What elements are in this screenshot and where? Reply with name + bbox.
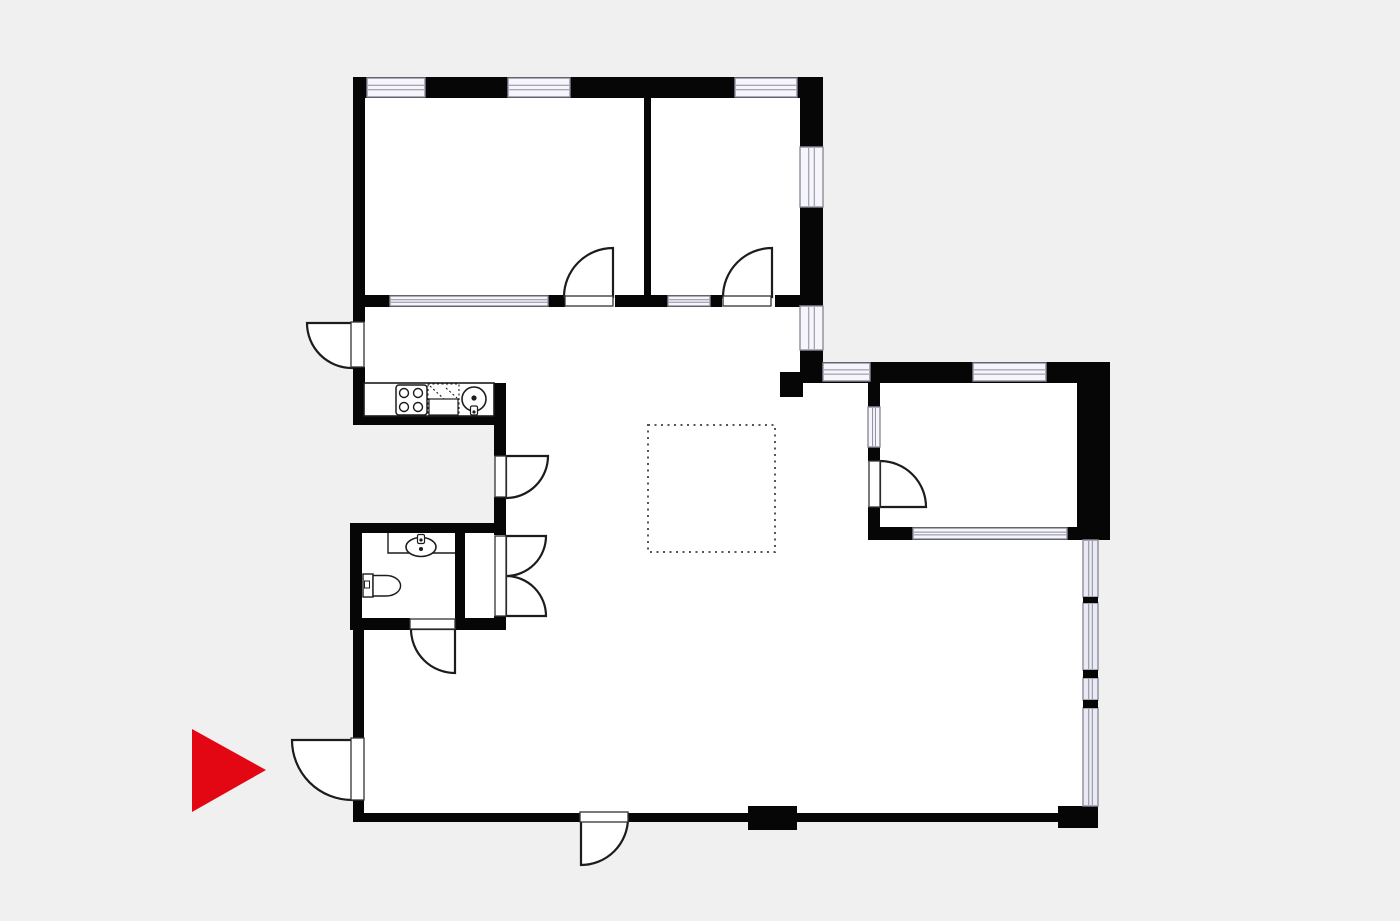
pier-living-corner (780, 372, 803, 397)
door-leaf-bedroom-2 (723, 296, 771, 306)
toilet-bowl (373, 576, 401, 597)
wall-bath-north (350, 523, 506, 533)
glass-pane-4-frame (1083, 708, 1098, 806)
wall-bedrooms-south-c (775, 295, 823, 307)
window-top-2-frame (508, 78, 570, 97)
glass-pane-2-frame (1083, 603, 1098, 670)
floorplan-image (0, 0, 1400, 921)
door-leaf-bedroom-1 (565, 296, 613, 306)
wall-bath-west (350, 523, 362, 630)
door-leaf-hall-exterior (351, 322, 364, 367)
glass-pane-4 (1083, 708, 1098, 806)
wash-basin-drain (419, 547, 423, 551)
window-glazed-partition-frame (390, 296, 548, 306)
entrance-pointer-arrow (192, 729, 266, 812)
door-leaf-terrace (580, 812, 628, 822)
door-leaf-closet (495, 536, 506, 616)
window-top-3-frame (735, 78, 797, 97)
glass-mullion-1 (1083, 597, 1098, 603)
dishwasher-front (429, 399, 458, 415)
pier-bottom-2 (1058, 806, 1098, 828)
door-leaf-entrance (351, 738, 364, 800)
window-top-3 (735, 78, 797, 97)
wall-bath-south-b (455, 618, 506, 630)
wall-bedroom-divider (644, 98, 651, 297)
window-top-1-frame (367, 78, 425, 97)
stove-burner-4 (414, 403, 423, 412)
door-leaf-right-room (869, 461, 880, 507)
window-rightroom-west (868, 407, 880, 447)
window-glazed-partition (390, 296, 548, 306)
stove-burner-2 (414, 389, 423, 398)
door-swing-entrance (292, 740, 352, 800)
pier-bottom-1 (748, 806, 797, 830)
window-east-bedroom2-b (800, 306, 823, 350)
wall-kitchen-east-a (494, 383, 506, 456)
floor-hall-upper (356, 297, 823, 383)
stove-burner-1 (400, 389, 409, 398)
floor-living-lower (506, 540, 1098, 820)
door-leaf-kitchen-hall (495, 456, 506, 497)
window-east-bedroom2-b-frame (800, 306, 823, 350)
stove-burner-3 (400, 403, 409, 412)
door-swing-terrace (581, 818, 628, 865)
window-east-bedroom2-a (800, 147, 823, 207)
wall-bottom-b (628, 813, 1058, 822)
wall-rightroom-east (1077, 362, 1110, 540)
glass-pane-1 (1083, 540, 1098, 597)
window-rightroom-west-frame (868, 407, 880, 447)
window-rightroom-south (913, 528, 1067, 539)
floorplan-svg (0, 0, 1400, 921)
glass-mullion-2 (1083, 670, 1098, 678)
kitchen-sink-drain (471, 395, 476, 400)
toilet-tank-button (365, 581, 370, 588)
floor-bath-hall (356, 523, 506, 820)
window-rightroom-north-1 (823, 363, 870, 381)
window-top-1 (367, 78, 425, 97)
window-rightroom-north-1-frame (823, 363, 870, 381)
glass-pane-3 (1083, 678, 1098, 700)
window-hall-partition (668, 296, 710, 306)
door-swing-hall-exterior (307, 323, 352, 368)
wall-kitchen-south (353, 416, 506, 425)
wall-bottom-a (353, 813, 580, 822)
window-rightroom-north-2 (973, 363, 1046, 381)
wall-bath-south-a (350, 618, 410, 630)
kitchen-faucet-dot (472, 410, 475, 413)
wall-bath-east (455, 533, 465, 618)
window-hall-partition-frame (668, 296, 710, 306)
window-rightroom-south-frame (913, 528, 1067, 539)
glass-pane-2 (1083, 603, 1098, 670)
floor-right-room (823, 362, 1110, 540)
window-top-2 (508, 78, 570, 97)
wall-left-lower-a (353, 630, 364, 738)
wall-left-upper (353, 77, 365, 322)
door-leaf-bathroom (410, 619, 455, 629)
window-rightroom-north-2-frame (973, 363, 1046, 381)
window-east-bedroom2-a-frame (800, 147, 823, 207)
basin-faucet-dot (419, 538, 422, 541)
glass-pane-1-frame (1083, 540, 1098, 597)
glass-mullion-3 (1083, 700, 1098, 708)
glass-pane-3-frame (1083, 678, 1098, 700)
